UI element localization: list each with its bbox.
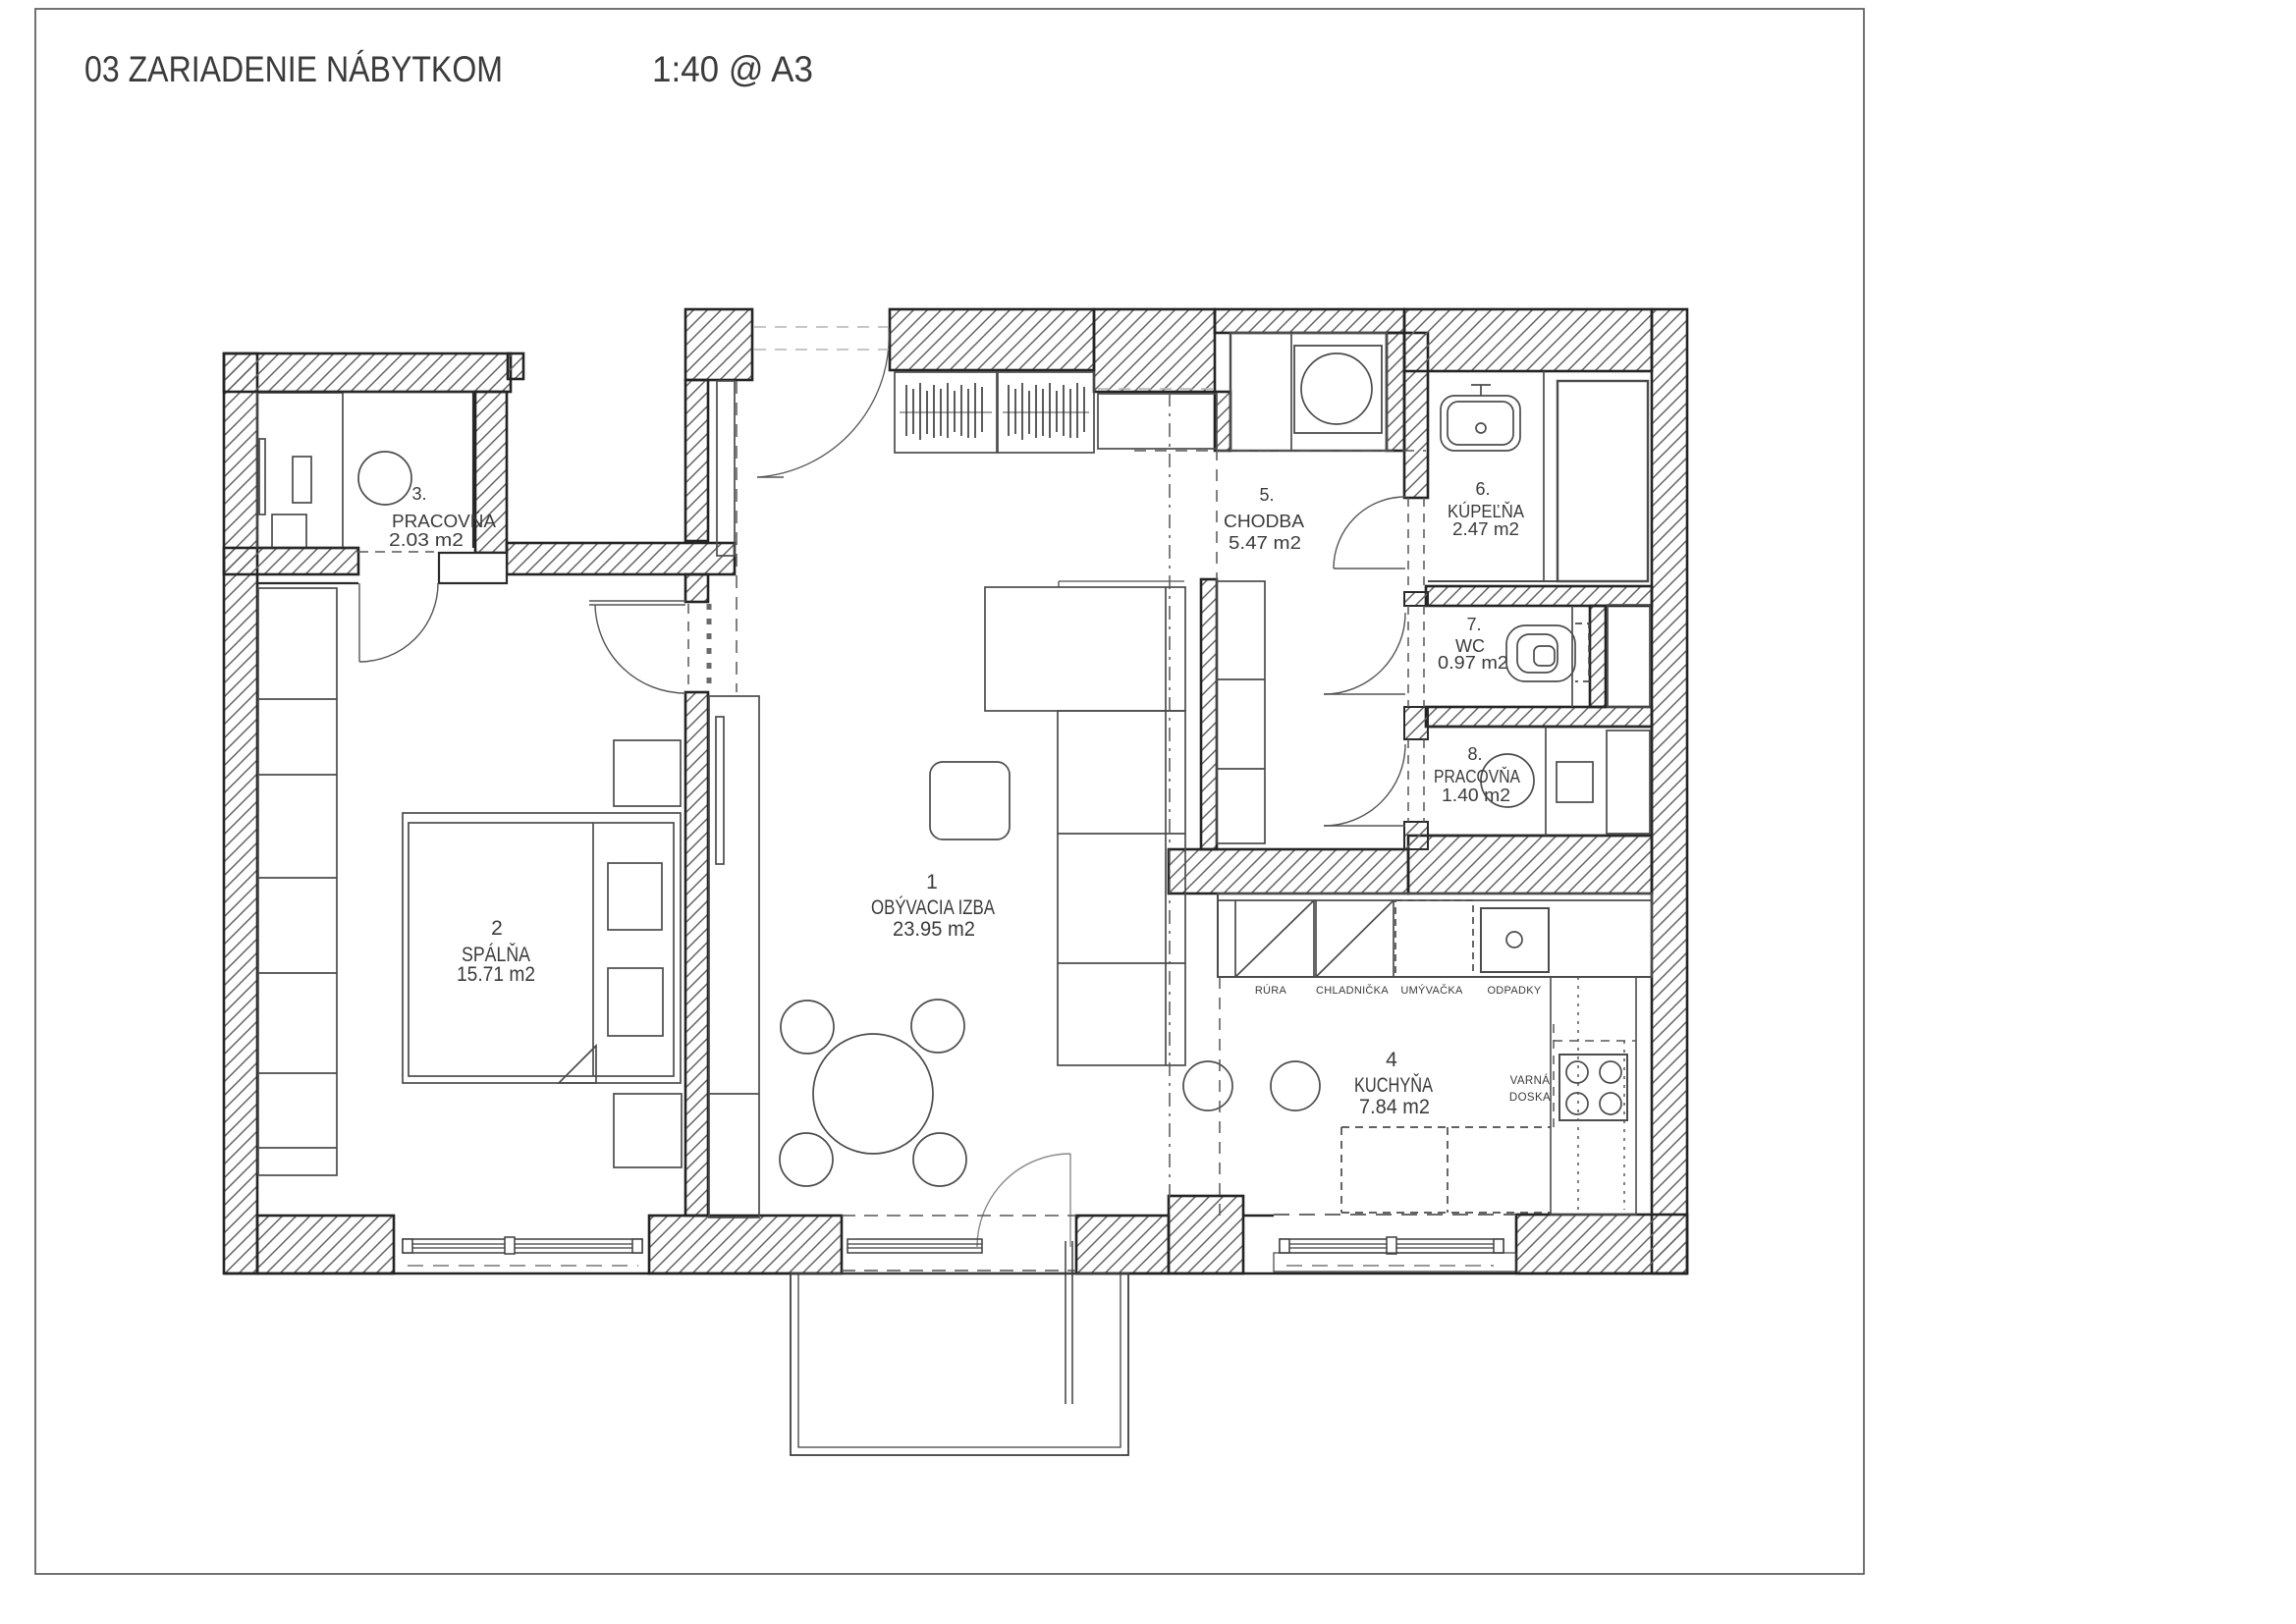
svg-text:PRACOVŇA: PRACOVŇA bbox=[392, 512, 496, 531]
svg-text:2.03 m2: 2.03 m2 bbox=[389, 530, 464, 550]
svg-text:CHLADNIČKA: CHLADNIČKA bbox=[1316, 984, 1389, 997]
svg-text:KÚPEĽŇA: KÚPEĽŇA bbox=[1448, 501, 1524, 521]
svg-text:DOSKA: DOSKA bbox=[1509, 1092, 1551, 1104]
svg-text:CHODBA: CHODBA bbox=[1224, 512, 1304, 531]
svg-text:1:40 @ A3: 1:40 @ A3 bbox=[652, 49, 813, 89]
svg-text:2.47 m2: 2.47 m2 bbox=[1452, 519, 1519, 539]
svg-text:6.: 6. bbox=[1475, 479, 1490, 499]
svg-text:KUCHYŇA: KUCHYŇA bbox=[1354, 1074, 1433, 1097]
svg-text:7.: 7. bbox=[1466, 615, 1481, 634]
svg-text:1: 1 bbox=[926, 871, 938, 893]
svg-text:4: 4 bbox=[1386, 1049, 1397, 1071]
svg-text:3.: 3. bbox=[411, 484, 426, 504]
svg-text:2: 2 bbox=[491, 917, 503, 940]
svg-text:5.: 5. bbox=[1259, 485, 1274, 505]
svg-text:0.97 m2: 0.97 m2 bbox=[1438, 653, 1508, 673]
svg-text:1.40 m2: 1.40 m2 bbox=[1442, 785, 1510, 805]
svg-text:8.: 8. bbox=[1467, 744, 1482, 764]
svg-text:03 ZARIADENIE NÁBYTKOM: 03 ZARIADENIE NÁBYTKOM bbox=[84, 49, 503, 89]
svg-text:23.95 m2: 23.95 m2 bbox=[893, 918, 975, 941]
svg-text:PRACOVŇA: PRACOVŇA bbox=[1434, 767, 1520, 786]
svg-text:ODPADKY: ODPADKY bbox=[1487, 985, 1541, 997]
svg-text:RÚRA: RÚRA bbox=[1255, 984, 1287, 997]
svg-text:VARNÁ: VARNÁ bbox=[1510, 1074, 1551, 1087]
svg-text:5.47 m2: 5.47 m2 bbox=[1229, 533, 1301, 553]
svg-text:7.84 m2: 7.84 m2 bbox=[1359, 1096, 1430, 1118]
svg-text:OBÝVACIA IZBA: OBÝVACIA IZBA bbox=[871, 896, 995, 919]
svg-text:UMÝVAČKA: UMÝVAČKA bbox=[1400, 984, 1463, 997]
svg-text:15.71 m2: 15.71 m2 bbox=[457, 963, 535, 986]
